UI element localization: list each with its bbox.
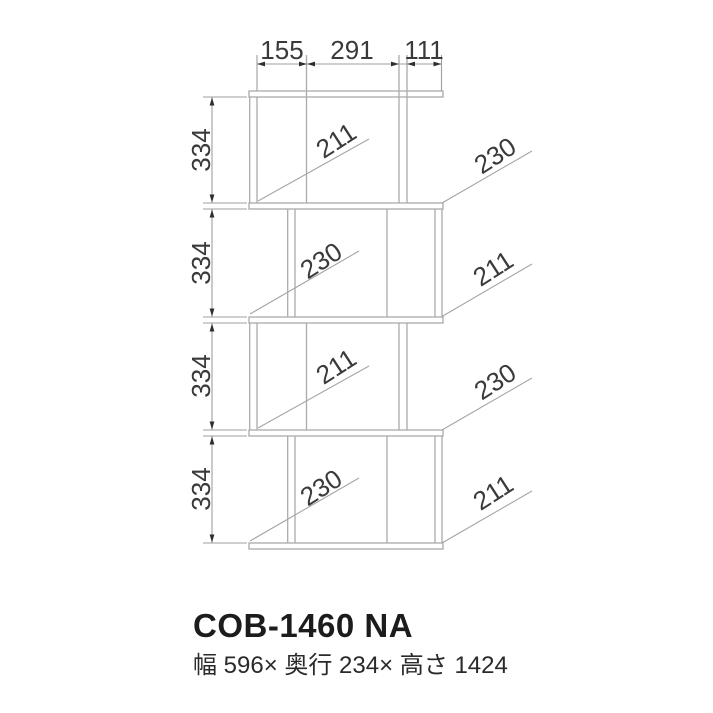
product-size: 幅 596× 奥行 234× 高さ 1424 xyxy=(193,653,673,679)
shelf-outlines xyxy=(249,91,443,549)
dim-inner-211-1: 211 xyxy=(311,117,362,165)
dim-top-155: 155 xyxy=(260,35,303,65)
product-model: COB-1460 NA xyxy=(193,608,673,644)
dim-left-334-2: 334 xyxy=(186,241,216,284)
shelf-board xyxy=(249,91,443,97)
dim-left-334-4: 334 xyxy=(186,467,216,510)
shelf-board xyxy=(249,543,443,549)
shelf-board xyxy=(249,203,443,209)
dim-left-334-3: 334 xyxy=(186,354,216,397)
dim-right-230-2: 230 xyxy=(469,357,522,406)
dim-inner-211-2: 211 xyxy=(311,343,362,391)
shelf-board xyxy=(249,317,443,323)
shelf-board xyxy=(249,430,443,436)
dim-top-291: 291 xyxy=(330,35,373,65)
dim-right-211-1: 211 xyxy=(468,245,519,293)
dim-inner-230-2: 230 xyxy=(295,463,348,512)
dim-right-211-2: 211 xyxy=(468,469,519,517)
dim-top-111: 111 xyxy=(404,35,444,65)
drawing-canvas: 155 291 111 334 334 334 334 211 230 211 … xyxy=(0,0,713,713)
dim-inner-230-1: 230 xyxy=(295,236,348,285)
dimension-labels: 155 291 111 334 334 334 334 211 230 211 … xyxy=(186,35,521,516)
dim-right-230-1: 230 xyxy=(469,131,522,180)
title-block: COB-1460 NA 幅 596× 奥行 234× 高さ 1424 xyxy=(193,608,673,679)
dim-left-334-1: 334 xyxy=(186,128,216,171)
